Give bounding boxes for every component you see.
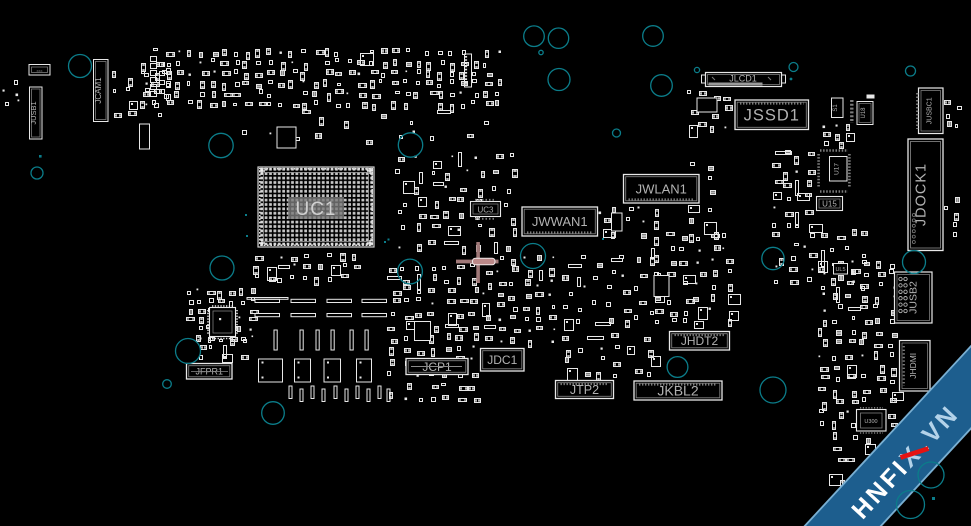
svg-text:UC1: UC1 xyxy=(295,199,336,220)
svg-text:U15: U15 xyxy=(822,200,837,209)
svg-text:xxx: xxx xyxy=(37,68,43,73)
svg-text:JUSB1: JUSB1 xyxy=(29,101,38,124)
svg-text:JCAM1: JCAM1 xyxy=(94,77,103,104)
svg-text:JDC1: JDC1 xyxy=(487,353,517,367)
svg-text:S1: S1 xyxy=(833,104,839,112)
svg-text:UC3: UC3 xyxy=(477,206,494,215)
svg-text:JUSBC1: JUSBC1 xyxy=(927,97,934,124)
svg-text:U17: U17 xyxy=(834,163,841,175)
svg-text:U18: U18 xyxy=(861,107,867,119)
svg-text:JTP2: JTP2 xyxy=(570,383,599,397)
svg-text:JLCD1: JLCD1 xyxy=(729,74,757,84)
svg-text:JDOCK1: JDOCK1 xyxy=(914,163,930,226)
svg-text:JUSB2: JUSB2 xyxy=(908,281,920,314)
svg-text:UL5: UL5 xyxy=(835,267,845,273)
svg-text:JHDMI: JHDMI xyxy=(908,353,918,379)
svg-text:JWLAN1: JWLAN1 xyxy=(636,181,687,196)
svg-text:U300: U300 xyxy=(864,419,877,425)
svg-text:JWWAN1: JWWAN1 xyxy=(532,214,588,229)
svg-text:JSSD1: JSSD1 xyxy=(744,107,800,125)
svg-text:JHDT2: JHDT2 xyxy=(681,334,719,348)
